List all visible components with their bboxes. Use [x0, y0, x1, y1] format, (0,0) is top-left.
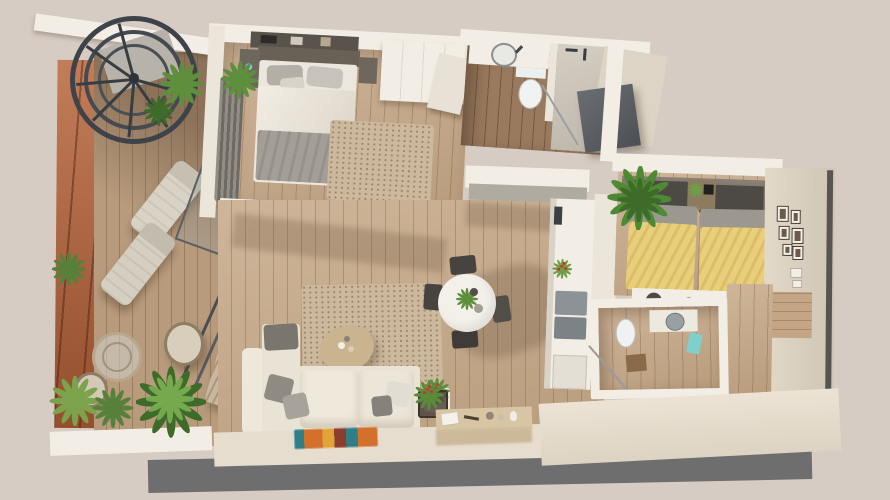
gallery-frame	[792, 246, 803, 260]
coffee-table-cup-2	[348, 346, 354, 352]
bed-pillow	[306, 65, 344, 89]
toilet	[513, 67, 546, 111]
nightstand-right	[358, 57, 377, 84]
shower-fixture	[565, 48, 577, 52]
gallery-frame	[791, 228, 803, 244]
bath-mat	[626, 354, 647, 373]
sofa-cushion	[300, 370, 358, 428]
floor-plan-stage	[0, 0, 890, 500]
bathroom2-toilet	[616, 318, 637, 347]
flower-basket-red-dots	[426, 388, 429, 391]
coffee-table-cup	[338, 342, 345, 349]
kitchen-lower-cabinet	[552, 355, 587, 390]
room-bathroom-2	[589, 293, 733, 401]
kitchen-appliance-2	[554, 317, 587, 340]
bistro-table-inner-ring	[102, 342, 132, 372]
terrace-plant-top-2	[144, 96, 174, 126]
coffee-table-bowl	[344, 336, 350, 342]
toilet-tank	[516, 67, 547, 79]
sofa-throw	[263, 323, 298, 351]
gallery-wall	[776, 206, 807, 264]
kitchen-flower-dots	[560, 265, 563, 268]
toilet-bowl	[517, 78, 543, 110]
gallery-frame	[779, 226, 790, 240]
shower-fixture-2	[583, 48, 587, 60]
wall-switch	[790, 268, 802, 278]
bathroom1-vanity	[468, 38, 550, 70]
runner-rug-multicolor	[294, 427, 379, 450]
gallery-frame	[782, 244, 792, 256]
shelf-item-tan	[320, 37, 330, 47]
console-bird-figure	[510, 411, 517, 421]
bedroom1-rug	[326, 120, 434, 205]
bedroom1-corner-plant	[220, 60, 260, 100]
sofa-pillow-gray-2	[282, 392, 310, 420]
nightstand-plant	[687, 182, 704, 199]
vanity-faucet	[515, 45, 523, 54]
gallery-frame	[791, 210, 801, 224]
vanity-sink	[490, 42, 518, 68]
twin-bed-1-yellow-cover	[625, 221, 696, 292]
console-open-book	[441, 412, 458, 425]
agave-plant-2	[92, 388, 134, 428]
nightstand-speaker	[704, 184, 714, 194]
terracotta-edge-plant	[52, 252, 86, 286]
shelf-item-dark	[260, 35, 276, 44]
sofa-armrest	[242, 348, 264, 434]
gallery-frame	[777, 206, 789, 222]
terrace-bush-highlight	[146, 374, 194, 424]
kitchen-side-counter	[544, 198, 597, 389]
kitchen-appliance	[555, 291, 588, 316]
kitchen-faucet	[554, 207, 563, 225]
console-pot	[486, 412, 494, 420]
stair-center-pole	[129, 73, 139, 83]
flower-basket-plant	[414, 380, 444, 410]
console-pot-2	[498, 414, 504, 420]
bathroom2-sink	[665, 313, 684, 331]
shelf-item-white	[290, 36, 302, 45]
sofa-pillow-dark	[371, 395, 393, 417]
console-sprig	[464, 415, 479, 421]
bathroom2-vanity	[649, 309, 697, 332]
kitchen-flower-pot	[552, 258, 573, 279]
bistro-chair-1	[164, 322, 204, 366]
wood-niche-panel	[770, 292, 812, 338]
wall-switch-2	[792, 280, 802, 288]
bedroom2-palm-dark	[617, 177, 663, 223]
